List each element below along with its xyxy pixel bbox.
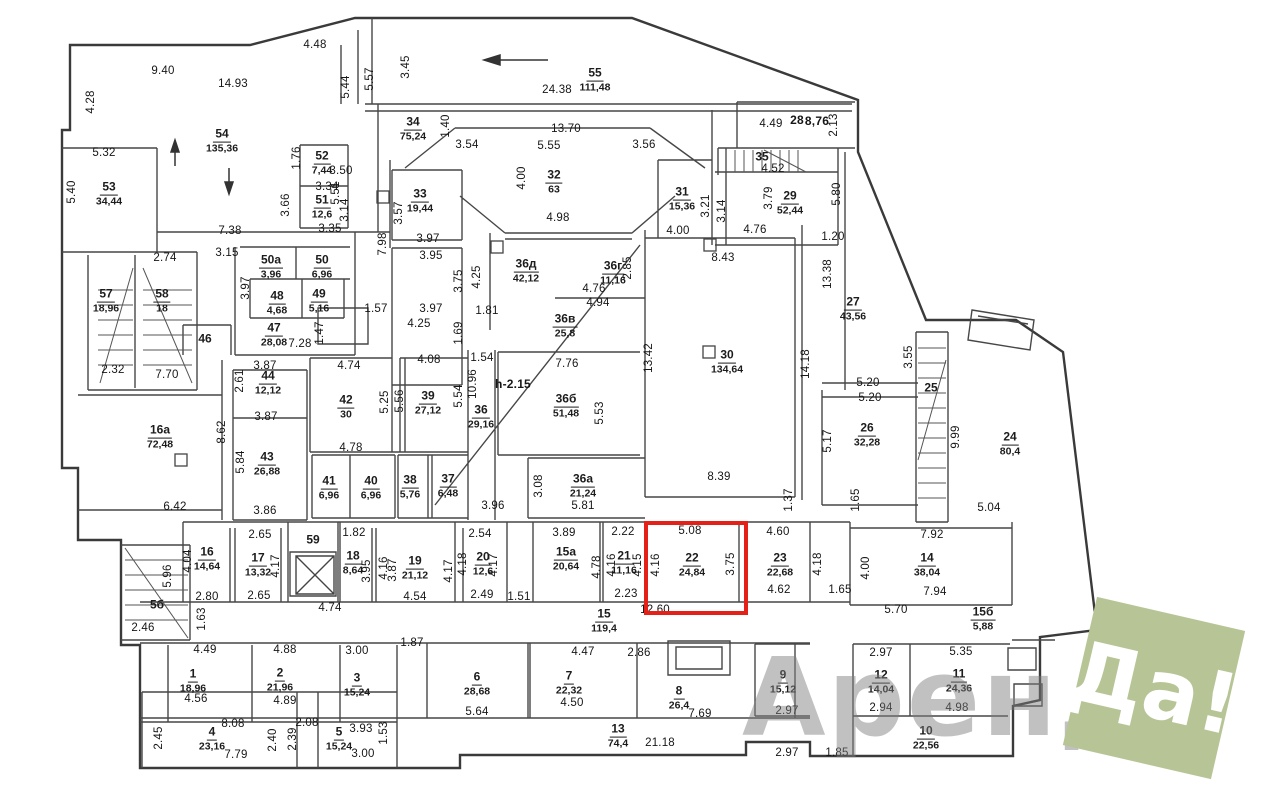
dimension-label: 4.94: [586, 297, 609, 309]
dimension-label: 4.08: [417, 354, 440, 366]
room-label-38: 385,76: [400, 472, 420, 501]
dimension-label: 1.40: [440, 114, 452, 137]
dimension-label: 1.82: [342, 527, 365, 539]
dimension-label: 2.08: [295, 717, 318, 729]
dimension-label: 4.18: [812, 552, 824, 575]
dimension-label: 3.08: [533, 474, 545, 497]
room-number: 18: [344, 550, 361, 565]
dimension-label: 3.34: [315, 181, 338, 193]
dimension-label: 4.52: [761, 163, 784, 175]
room-number: 47: [265, 322, 282, 337]
dimension-label: 3.89: [552, 527, 575, 539]
room-number: 6: [472, 671, 483, 686]
dimension-label: 2.46: [131, 622, 154, 634]
dimension-label: 1.85: [825, 747, 848, 759]
room-number: 36: [472, 404, 489, 419]
dimension-label: 9.99: [950, 425, 962, 448]
dimension-label: 3.86: [253, 505, 276, 517]
room-label-14: 1438,04: [914, 550, 940, 579]
room-number: 15: [595, 608, 612, 623]
dimension-label: 3.14: [339, 198, 351, 221]
room-number: 41: [320, 475, 337, 490]
room-label-50а: 50а3,96: [259, 252, 283, 281]
room-area: 15,12: [770, 684, 796, 695]
room-label-47: 4728,08: [261, 320, 287, 349]
dimension-label: 1.76: [291, 146, 303, 169]
room-number: 48: [268, 290, 285, 305]
dimension-label: 1.37: [783, 488, 795, 511]
room-label-11: 1124,36: [946, 666, 972, 695]
room-label-40: 406,96: [361, 473, 381, 502]
room-number: 12: [872, 669, 889, 684]
room-area: 80,4: [1000, 446, 1020, 457]
dimension-label: 4.49: [759, 118, 782, 130]
room-area: 29,16: [468, 419, 494, 430]
dimension-label: 7.38: [218, 225, 241, 237]
dimension-label: 2.32: [101, 364, 124, 376]
dimension-label: 7.92: [920, 529, 943, 541]
dimension-label: 7.94: [923, 586, 946, 598]
dimension-label: 7.79: [224, 749, 247, 761]
room-area: 74,4: [608, 738, 628, 749]
room-area: 15,24: [326, 741, 352, 752]
room-area: 20,64: [553, 561, 579, 572]
room-label-15а: 15а20,64: [553, 544, 579, 573]
room-number: 58: [153, 288, 170, 303]
room-number: 4: [207, 726, 218, 741]
room-area: 72,48: [147, 439, 173, 450]
dimension-label: 5.55: [537, 140, 560, 152]
room-area: 21,96: [267, 682, 293, 693]
dimension-label: 5.20: [856, 377, 879, 389]
room-label-3: 315,24: [344, 670, 370, 699]
room-number: 51: [313, 194, 330, 209]
room-area: 22,68: [767, 567, 793, 578]
dimension-label: 4.74: [318, 602, 341, 614]
room-number: 15б: [971, 606, 996, 621]
room-label-30: 30134,64: [711, 347, 743, 376]
room-number: 42: [337, 394, 354, 409]
room-number: 19: [406, 555, 423, 570]
room-label-23: 2322,68: [767, 550, 793, 579]
room-area: 119,4: [591, 623, 617, 634]
room-number: 53: [100, 181, 117, 196]
dimension-label: 4.00: [516, 166, 528, 189]
room-area: 5,16: [309, 303, 329, 314]
room-area: 3,96: [259, 269, 283, 280]
floor-plan: 5334,4454135,36527,445112,655111,483475,…: [0, 0, 1281, 800]
dimension-label: 10.96: [467, 369, 479, 399]
room-area: 22,32: [556, 685, 582, 696]
room-area: 28,08: [261, 337, 287, 348]
highlighted-room-22-outline: [644, 521, 748, 615]
room-area: 15,24: [344, 687, 370, 698]
dimension-label: 3.87: [253, 360, 276, 372]
dimension-label: 2.97: [869, 647, 892, 659]
dimension-label: 2.61: [234, 369, 246, 392]
dimension-label: 3.95: [361, 559, 373, 582]
dimension-label: 6.42: [163, 501, 186, 513]
room-number: 55: [586, 67, 603, 82]
dimension-label: 5.20: [858, 392, 881, 404]
room-number: 40: [362, 475, 379, 490]
room-label-13: 1374,4: [608, 721, 628, 750]
dimension-label: 4.76: [743, 224, 766, 236]
dimension-label: 4.15: [632, 553, 644, 576]
dimension-label: 3.96: [481, 500, 504, 512]
dimension-label: 3.66: [280, 193, 292, 216]
dimension-label: 4.17: [270, 554, 282, 577]
room-label-36а: 36а21,24: [570, 471, 596, 500]
room-area: 26,4: [669, 700, 689, 711]
dimension-label: 3.00: [345, 645, 368, 657]
room-area: 6,96: [361, 490, 381, 501]
room-number: 46: [196, 333, 213, 347]
dimension-label: 3.54: [455, 139, 478, 151]
room-label-55: 55111,48: [580, 65, 611, 94]
dimension-label: 5.56: [394, 389, 406, 412]
room-number: 52: [313, 150, 330, 165]
dimension-label: 7.76: [555, 358, 578, 370]
dimension-label: 4.47: [571, 646, 594, 658]
dimension-label: 2.39: [287, 727, 299, 750]
dimension-label: 4.48: [303, 39, 326, 51]
room-area: 135,36: [206, 143, 238, 154]
room-number: 2: [275, 667, 286, 682]
dimension-label: 7.70: [155, 369, 178, 381]
dimension-label: 8.39: [707, 471, 730, 483]
room-area: 22,56: [913, 740, 939, 751]
dimension-label: 4.88: [273, 644, 296, 656]
room-number: 39: [419, 390, 436, 405]
room-number: 10: [917, 725, 934, 740]
dimension-label: 3.93: [349, 723, 372, 735]
room-label-29: 2952,44: [777, 188, 803, 217]
dimension-label: 4.50: [560, 697, 583, 709]
room-label-53: 5334,44: [96, 179, 122, 208]
dimension-label: 21.18: [645, 737, 675, 749]
dimension-label: 7.28: [288, 338, 311, 350]
dimension-label: 5.25: [379, 390, 391, 413]
dimension-label: 4.54: [403, 591, 426, 603]
dimension-label: 1.65: [850, 488, 862, 511]
dimension-label: 2.54: [468, 528, 491, 540]
room-label-46: 46: [196, 331, 213, 348]
dimension-label: 2.22: [611, 526, 634, 538]
room-label-6: 628,68: [464, 669, 490, 698]
room-label-17: 1713,32: [245, 550, 271, 579]
room-label-5: 515,24: [326, 724, 352, 753]
room-number: 43: [258, 451, 275, 466]
room-number: 15а: [554, 546, 578, 561]
room-number: 50а: [259, 254, 283, 269]
dimension-label: 1.47: [314, 321, 326, 344]
dimension-label: 3.87: [387, 558, 399, 581]
dimension-label: 4.74: [337, 360, 360, 372]
dimension-label: 4.28: [85, 90, 97, 113]
room-area: 52,44: [777, 205, 803, 216]
dimension-label: 7.69: [688, 708, 711, 720]
dimension-label: 4.04: [182, 549, 194, 572]
dimension-label: 2.40: [267, 728, 279, 751]
room-number: 36а: [571, 473, 595, 488]
dimension-label: 4.49: [193, 644, 216, 656]
room-number: 13: [609, 723, 626, 738]
dimension-label: 4.00: [666, 225, 689, 237]
dimension-label: 4.56: [184, 693, 207, 705]
dimension-label: 7.98: [377, 232, 389, 255]
room-area: 75,24: [400, 131, 426, 142]
room-label-27: 2743,56: [840, 294, 866, 323]
room-label-41: 416,96: [319, 473, 339, 502]
room-number: 36д: [514, 258, 539, 273]
room-number: 7: [564, 670, 575, 685]
room-number: 34: [404, 116, 421, 131]
dimension-label: 1.63: [196, 607, 208, 630]
room-label-25: 25: [922, 380, 939, 397]
dimension-label: 2.85: [622, 256, 634, 279]
room-number: 57: [97, 288, 114, 303]
dimension-label: 4.60: [766, 526, 789, 538]
dimension-label: 3.97: [240, 276, 252, 299]
dimension-label: 3.75: [453, 269, 465, 292]
room-number: 17: [249, 552, 266, 567]
room-number: 27: [844, 296, 861, 311]
dimension-label: 14.18: [800, 349, 812, 379]
room-area: 134,64: [711, 364, 743, 375]
room-number: 37: [439, 473, 456, 488]
dimension-label: 2.13: [828, 113, 840, 136]
room-label-15б: 15б5,88: [971, 604, 996, 633]
dimension-label: 3.97: [419, 303, 442, 315]
room-label-59: 59: [304, 532, 321, 549]
room-area: 24,36: [946, 683, 972, 694]
room-label-34: 3475,24: [400, 114, 426, 143]
room-area: 5,88: [971, 621, 996, 632]
dimension-label: 14.93: [218, 78, 248, 90]
dimension-label: 5.64: [465, 706, 488, 718]
dimension-label: 2.49: [470, 589, 493, 601]
dimension-label: 13.38: [822, 259, 834, 289]
room-area: 6,48: [438, 488, 458, 499]
dimension-label: 1.87: [400, 637, 423, 649]
room-label-39: 3927,12: [415, 388, 441, 417]
dimension-label: 5.53: [594, 401, 606, 424]
room-number: 25: [922, 382, 939, 396]
room-area: 14,04: [868, 684, 894, 695]
dimension-label: h-2.15: [495, 377, 531, 391]
room-number: 14: [918, 552, 935, 567]
room-number: 36г: [602, 260, 624, 275]
room-area: 14,64: [194, 561, 220, 572]
room-label-36: 3629,16: [468, 402, 494, 431]
room-label-36б: 36б51,48: [553, 391, 579, 420]
room-number: 54: [213, 128, 230, 143]
room-label-54: 54135,36: [206, 126, 238, 155]
dimension-label: 2.94: [869, 702, 892, 714]
room-label-15: 15119,4: [591, 606, 617, 635]
dimension-label: 1.57: [364, 303, 387, 315]
dimension-label: 3.87: [254, 411, 277, 423]
room-label-12: 1214,04: [868, 667, 894, 696]
room-number: 50: [313, 254, 330, 269]
dimension-label: 3.57: [393, 201, 405, 224]
room-label-7: 722,32: [556, 668, 582, 697]
dimension-label: 1.53: [378, 721, 390, 744]
room-label-19: 1921,12: [402, 553, 428, 582]
room-label-9: 915,12: [770, 667, 796, 696]
room-label-48: 484,68: [267, 288, 287, 317]
room-number: 33: [411, 188, 428, 203]
room-label-8: 826,4: [669, 683, 689, 712]
room-area: 42,12: [513, 273, 539, 284]
dimension-label: 4.18: [457, 552, 469, 575]
room-number: 31: [673, 186, 690, 201]
room-label-1: 118,96: [180, 666, 206, 695]
room-label-43: 4326,88: [254, 449, 280, 478]
room-area: 19,44: [407, 203, 433, 214]
room-number: 8: [674, 685, 685, 700]
room-label-16: 1614,64: [194, 544, 220, 573]
room-area: 26,88: [254, 466, 280, 477]
dimension-label: 4.98: [945, 702, 968, 714]
room-number: 1: [188, 668, 199, 683]
dimension-label: 3.95: [419, 250, 442, 262]
room-number: 59: [304, 534, 321, 548]
dimension-label: 2.86: [627, 647, 650, 659]
room-area: 111,48: [580, 82, 611, 93]
dimension-label: 4.17: [443, 559, 455, 582]
room-number: 30: [718, 349, 735, 364]
room-area: 21,12: [402, 570, 428, 581]
room-label-50: 506,96: [312, 252, 332, 281]
room-label-32: 3263: [545, 167, 562, 196]
dimension-label: 9.40: [151, 65, 174, 77]
room-area: 5,76: [400, 489, 420, 500]
dimension-label: 8.08: [221, 718, 244, 730]
room-label-31: 3115,36: [669, 184, 695, 213]
room-number: 5б: [148, 599, 166, 613]
dimension-label: 3.97: [416, 233, 439, 245]
dimension-label: 4.62: [767, 584, 790, 596]
dimension-label: 5.96: [162, 564, 174, 587]
room-number: 11: [951, 668, 968, 683]
room-area: 63: [545, 184, 562, 195]
dimension-label: 4.89: [273, 695, 296, 707]
dimension-label: 2.65: [247, 590, 270, 602]
labels-layer: 5334,4454135,36527,445112,655111,483475,…: [0, 0, 1281, 800]
dimension-label: 3.50: [329, 165, 352, 177]
room-area: 13,32: [245, 567, 271, 578]
room-number: 36б: [554, 393, 579, 408]
room-area: 23,16: [199, 741, 225, 752]
dimension-label: 2.23: [614, 588, 637, 600]
room-area: 18,96: [93, 303, 119, 314]
room-area: 34,44: [96, 196, 122, 207]
room-area: 38,04: [914, 567, 940, 578]
room-number: 38: [401, 474, 418, 489]
room-number: 36в: [553, 313, 578, 328]
room-area: 18: [153, 303, 170, 314]
dimension-label: 4.17: [488, 553, 500, 576]
dimension-label: 5.40: [66, 180, 78, 203]
room-area: 6,96: [319, 490, 339, 501]
dimension-label: 13.42: [643, 343, 655, 373]
dimension-label: 3.15: [215, 247, 238, 259]
room-number: 9: [778, 669, 789, 684]
room-label-16а: 16а72,48: [147, 422, 173, 451]
dimension-label: 1.69: [453, 321, 465, 344]
dimension-label: 1.81: [475, 305, 498, 317]
dimension-label: 4.00: [860, 556, 872, 579]
dimension-label: 2.80: [195, 591, 218, 603]
room-number: 49: [310, 288, 327, 303]
room-label-33: 3319,44: [407, 186, 433, 215]
dimension-label: 8.62: [216, 420, 228, 443]
room-number: 29: [781, 190, 798, 205]
dimension-label: 4.16: [606, 553, 618, 576]
room-area: 30: [337, 409, 354, 420]
dimension-label: 2.65: [248, 529, 271, 541]
room-area: 15,36: [669, 201, 695, 212]
room-area: 43,56: [840, 311, 866, 322]
room-number: 3: [352, 672, 363, 687]
dimension-label: 2.74: [153, 252, 176, 264]
room-label-37: 376,48: [438, 471, 458, 500]
dimension-label: 8,76: [805, 114, 829, 128]
room-label-24: 2480,4: [1000, 429, 1020, 458]
room-area: 28,68: [464, 686, 490, 697]
room-label-58: 5818: [153, 286, 170, 315]
room-label-10: 1022,56: [913, 723, 939, 752]
dimension-label: 3.21: [700, 194, 712, 217]
dimension-label: 2.97: [775, 705, 798, 717]
room-area: 6,96: [312, 269, 332, 280]
dimension-label: 4.25: [471, 265, 483, 288]
room-label-57: 5718,96: [93, 286, 119, 315]
room-label-2: 221,96: [267, 665, 293, 694]
dimension-label: 4.98: [546, 212, 569, 224]
dimension-label: 3.14: [716, 199, 728, 222]
dimension-label: 4.78: [591, 555, 603, 578]
room-area: 4,68: [267, 305, 287, 316]
dimension-label: 5.35: [949, 646, 972, 658]
room-number: 26: [858, 422, 875, 437]
room-number: 23: [771, 552, 788, 567]
room-number: 16: [198, 546, 215, 561]
dimension-label: 1.54: [470, 352, 493, 364]
dimension-label: 1.20: [821, 231, 844, 243]
room-label-5б: 5б: [148, 597, 166, 614]
dimension-label: 4.76: [582, 283, 605, 295]
room-area: 12,6: [312, 209, 332, 220]
dimension-label: 2.97: [775, 747, 798, 759]
room-area: 21,24: [570, 488, 596, 499]
room-area: 12,12: [255, 385, 281, 396]
room-number: 16а: [148, 424, 172, 439]
dimension-label: 1.65: [828, 584, 851, 596]
dimension-label: 8.43: [711, 252, 734, 264]
dimension-label: 5.44: [340, 75, 352, 98]
dimension-label: 2.45: [153, 726, 165, 749]
dimension-label: 3.00: [351, 748, 374, 760]
room-area: 51,48: [553, 408, 579, 419]
dimension-label: 28: [790, 113, 804, 127]
room-area: 32,28: [854, 437, 880, 448]
room-label-26: 2632,28: [854, 420, 880, 449]
room-label-42: 4230: [337, 392, 354, 421]
dimension-label: 4.78: [339, 442, 362, 454]
